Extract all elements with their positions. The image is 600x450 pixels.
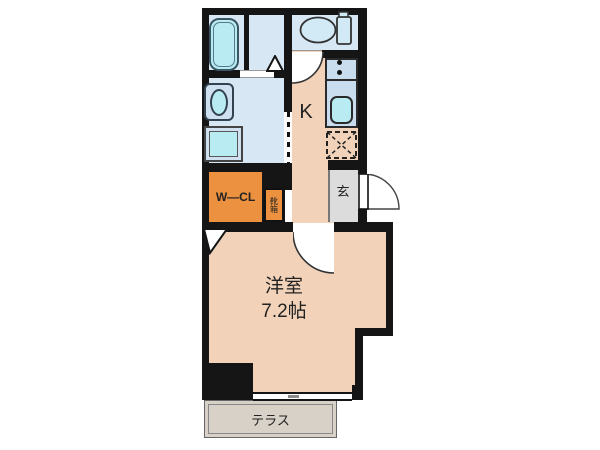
wall-toilet-bottom	[322, 50, 358, 58]
terrace-label-text: テラス	[251, 410, 290, 429]
room-door-marker	[203, 228, 229, 255]
wall-bath-wash-left	[202, 70, 240, 78]
toilet-door-threshold	[292, 50, 322, 51]
refrigerator-space	[326, 131, 357, 159]
main-room-label: 洋室 7.2帖	[209, 273, 359, 325]
washing-machine	[204, 126, 243, 162]
wall-room-top-right	[334, 222, 393, 232]
kitchen-sink	[330, 96, 353, 124]
wall-mid-vertical	[284, 15, 292, 112]
wall-bulge-right	[386, 225, 393, 336]
room-door-swing	[293, 232, 335, 274]
terrace-label: テラス	[204, 411, 337, 427]
floor-plan: K 玄 W—CL 靴箱 洋室 7.2帖 テラス	[0, 0, 600, 450]
main-room-size: 7.2帖	[261, 299, 306, 324]
wall-entrance-top	[328, 160, 367, 170]
pillar	[202, 363, 253, 398]
washroom-sliding-door	[284, 112, 292, 163]
toilet-door-swing	[292, 52, 325, 85]
entrance-label-text: 玄	[336, 181, 349, 200]
walk-in-closet-label: W—CL	[209, 189, 262, 204]
wall-right-upper	[358, 8, 367, 174]
walk-in-closet-label-text: W—CL	[216, 190, 255, 204]
shoe-cabinet-label: 靴箱	[264, 190, 284, 220]
stove-burner-1	[337, 60, 342, 65]
wall-bottom-right-corner	[352, 385, 363, 400]
counter-divider	[325, 79, 358, 81]
entrance-door-swing	[358, 174, 403, 211]
wall-left	[202, 8, 209, 400]
main-room-name: 洋室	[265, 274, 303, 299]
wall-bath-inner	[244, 15, 249, 70]
entrance-label: 玄	[328, 182, 358, 198]
kitchen-label-text: K	[299, 101, 312, 124]
kitchen-label: K	[292, 100, 320, 124]
toilet	[294, 10, 356, 50]
bathroom-door-marker	[266, 55, 284, 73]
vanity-sink	[204, 83, 234, 121]
terrace-window	[253, 392, 352, 401]
bathtub	[209, 18, 239, 71]
stove-burner-2	[337, 70, 342, 75]
shoe-cabinet-label-text: 靴箱	[269, 197, 280, 213]
hallway-strip	[285, 190, 292, 223]
